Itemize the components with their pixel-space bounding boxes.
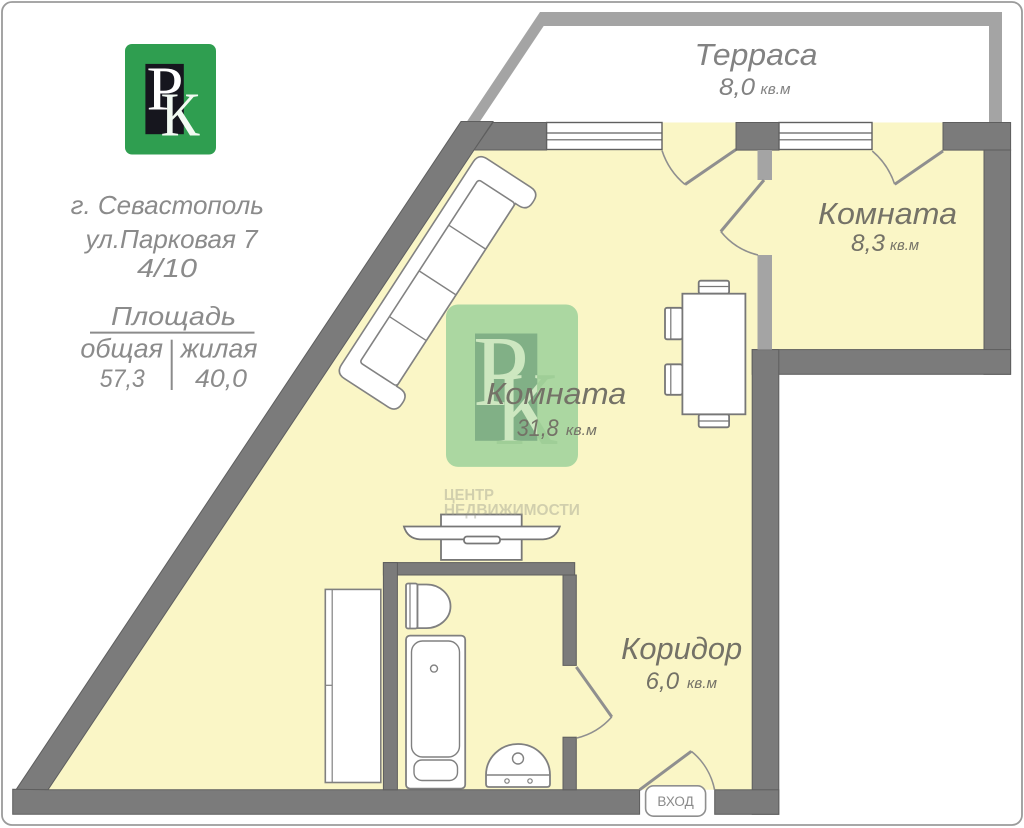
svg-text:кв.м: кв.м bbox=[687, 675, 717, 692]
svg-text:ВХОД: ВХОД bbox=[657, 794, 693, 809]
svg-text:кв.м: кв.м bbox=[761, 81, 791, 98]
svg-text:40,0: 40,0 bbox=[195, 365, 247, 393]
svg-text:кв.м: кв.м bbox=[566, 422, 597, 439]
svg-text:6,0: 6,0 bbox=[646, 668, 680, 695]
svg-text:8,0: 8,0 bbox=[719, 74, 756, 101]
svg-text:Комната: Комната bbox=[486, 377, 626, 411]
svg-text:Площадь: Площадь bbox=[111, 301, 236, 331]
svg-text:31,8: 31,8 bbox=[517, 415, 560, 442]
svg-text:жилая: жилая bbox=[179, 334, 257, 364]
svg-text:Коридор: Коридор bbox=[621, 632, 742, 666]
svg-text:Комната: Комната bbox=[818, 197, 957, 231]
svg-text:57,3: 57,3 bbox=[100, 365, 145, 393]
svg-text:8,3: 8,3 bbox=[851, 230, 886, 257]
svg-text:общая: общая bbox=[80, 334, 163, 364]
svg-text:НЕДВИЖИМОСТИ: НЕДВИЖИМОСТИ bbox=[444, 502, 580, 519]
svg-text:ул.Парковая 7: ул.Парковая 7 bbox=[83, 224, 259, 254]
svg-text:К: К bbox=[161, 82, 201, 150]
svg-text:кв.м: кв.м bbox=[890, 237, 919, 254]
svg-text:4/10: 4/10 bbox=[137, 253, 198, 283]
svg-text:Терраса: Терраса bbox=[695, 38, 818, 72]
svg-text:г. Севастополь: г. Севастополь bbox=[71, 190, 264, 220]
